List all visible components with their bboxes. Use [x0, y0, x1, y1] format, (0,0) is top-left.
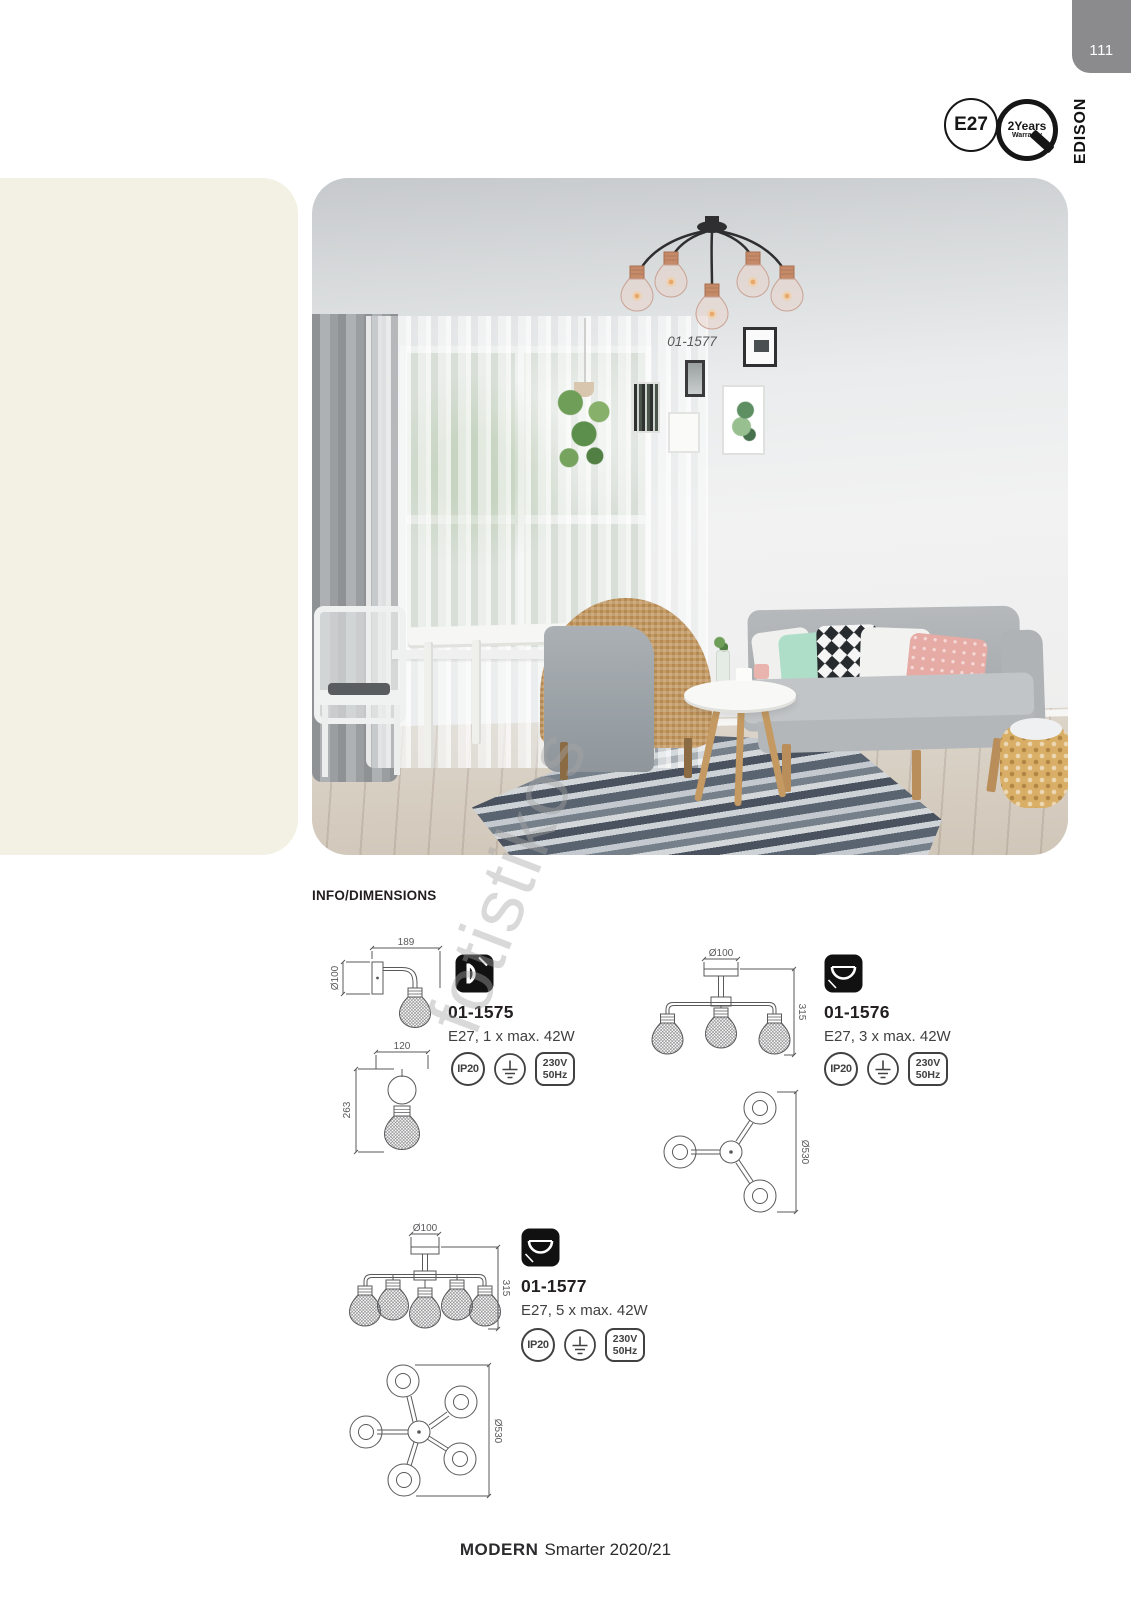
photo-wall-frame: [632, 382, 660, 433]
page-number: 111: [1089, 42, 1113, 59]
ip-rating-badge: IP20: [824, 1052, 858, 1086]
photo-wicker-leg: [560, 742, 568, 780]
footer-edition: Smarter 2020/21: [544, 1540, 671, 1559]
certifications-row: IP20 230V 50Hz: [451, 1052, 575, 1086]
page-number-tab: 111: [1072, 0, 1131, 73]
photo-wall-frame: [668, 412, 700, 453]
dim-plate: Ø100: [330, 965, 341, 990]
photo-plant-string: [584, 318, 586, 386]
voltage-badge: 230V 50Hz: [605, 1328, 645, 1362]
dim-depth: 120: [394, 1041, 411, 1052]
frequency-label: 50Hz: [916, 1069, 941, 1081]
photo-wall-frame: [685, 360, 705, 397]
dim-canopy: Ø100: [709, 948, 734, 959]
product-spec: E27, 1 x max. 42W: [448, 1028, 575, 1045]
photo-table-vase: [716, 650, 730, 684]
photo-basket-cloth: [1010, 718, 1062, 740]
product-code: 01-1577: [521, 1276, 587, 1297]
footer: MODERNSmarter 2020/21: [0, 1540, 1131, 1560]
voltage-badge: 230V 50Hz: [908, 1052, 948, 1086]
grounding-icon: [563, 1328, 597, 1362]
photo-table-leg: [472, 640, 481, 744]
dim-height: 315: [796, 1004, 807, 1021]
dim-height: 263: [342, 1101, 353, 1118]
dim-spread: Ø530: [799, 1140, 810, 1165]
photo-hanging-plant: [550, 386, 618, 478]
photo-chair-leg: [394, 705, 400, 775]
photo-table-mug: [754, 664, 769, 679]
product-spec: E27, 3 x max. 42W: [824, 1028, 951, 1045]
photo-wall-frame: [722, 385, 765, 455]
category-tab-label: EDISON: [1072, 98, 1090, 164]
certifications-row: IP20 230V 50Hz: [824, 1052, 948, 1086]
dim-height: 315: [500, 1280, 511, 1297]
photo-wicker-leg: [684, 738, 692, 778]
voltage-label: 230V: [543, 1057, 568, 1069]
photo-table-leg: [424, 642, 433, 768]
info-dimensions-heading: INFO/DIMENSIONS: [312, 888, 437, 903]
photo-table-cup: [736, 668, 752, 681]
ceiling-light-pictogram-icon: [521, 1228, 560, 1267]
drawing-top-01-1576: Ø530: [646, 1080, 816, 1222]
drawing-top-01-1577: Ø530: [336, 1336, 514, 1508]
photo-sofa-leg: [912, 750, 921, 800]
photo-chair-pad: [328, 683, 390, 695]
voltage-badge: 230V 50Hz: [535, 1052, 575, 1086]
product-spec: E27, 5 x max. 42W: [521, 1302, 648, 1319]
footer-brand: MODERN: [460, 1540, 539, 1559]
warranty-line1: 2Years: [1008, 120, 1047, 132]
grounding-icon: [866, 1052, 900, 1086]
frequency-label: 50Hz: [543, 1069, 568, 1081]
socket-badge-label: E27: [954, 114, 988, 136]
photo-coffee-table: [684, 680, 796, 710]
socket-badge: E27: [944, 98, 998, 152]
drawing-front-01-1575: 189 Ø100: [326, 936, 450, 1048]
ip-rating-badge: IP20: [521, 1328, 555, 1362]
ceiling-light-pictogram-icon: [824, 954, 863, 993]
drawing-front-01-1576: Ø100 315: [636, 946, 816, 1068]
hero-caption: 01-1577: [612, 334, 772, 349]
photo-chair-leg: [322, 705, 328, 777]
grounding-icon: [493, 1052, 527, 1086]
product-code: 01-1576: [824, 1002, 890, 1023]
drawing-front-01-1577: Ø100 315: [336, 1220, 514, 1346]
voltage-label: 230V: [613, 1333, 638, 1345]
frequency-label: 50Hz: [613, 1345, 638, 1357]
catalog-page: 111 EDISON E27 2Years Warranty: [0, 0, 1131, 1600]
dim-spread: Ø530: [492, 1419, 503, 1444]
dim-canopy: Ø100: [413, 1223, 438, 1234]
dim-width: 189: [398, 937, 415, 948]
drawing-side-01-1575: 120 263: [336, 1040, 448, 1170]
side-accent-panel: [0, 178, 298, 855]
ceiling-lamp-5-light: [607, 200, 817, 350]
wall-light-pictogram-icon: [455, 954, 494, 993]
voltage-label: 230V: [916, 1057, 941, 1069]
hero-photo: 01-1577: [312, 178, 1068, 855]
ip-rating-badge: IP20: [451, 1052, 485, 1086]
certifications-row: IP20 230V 50Hz: [521, 1328, 645, 1362]
product-code: 01-1575: [448, 1002, 514, 1023]
